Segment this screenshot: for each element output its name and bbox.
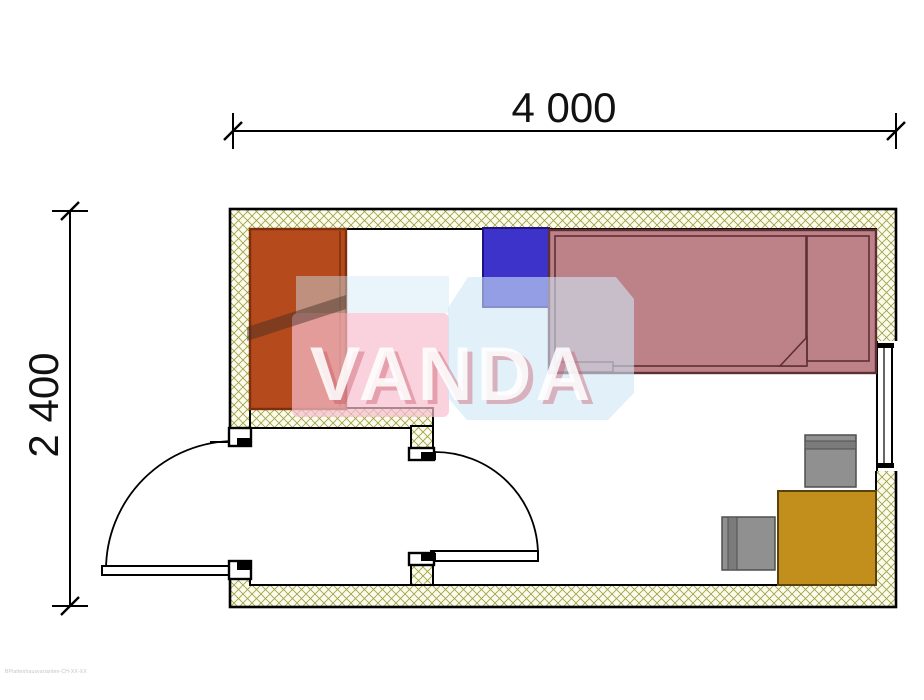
interior-jamb-bottom-stop	[421, 553, 436, 561]
dimension-width-label: 4 000	[511, 84, 616, 131]
entrance-jamb-top-stop	[237, 438, 252, 447]
chair-left-backrest	[728, 517, 737, 570]
entrance-jamb-bottom	[229, 561, 252, 579]
watermark: VANDA VANDA	[247, 276, 634, 421]
chair-left	[722, 517, 775, 570]
floor-plan-page: VANDA VANDA 4 000 2 400 BPlattenhausvari…	[0, 0, 924, 700]
fineprint-text: BPlattenhausvarianten-CH-XX-XX	[5, 669, 87, 675]
entrance-door-swing-arc	[106, 441, 235, 570]
desk	[778, 491, 876, 585]
interior-jamb-top-stop	[421, 452, 436, 460]
dimension-width: 4 000	[224, 84, 905, 149]
watermark-text: VANDA	[310, 332, 595, 417]
entrance-jamb-top	[229, 428, 252, 447]
dimension-height-label: 2 400	[20, 352, 67, 457]
interior-door-leaf	[431, 551, 538, 561]
dimension-height: 2 400	[20, 202, 88, 615]
entrance-jamb-bottom-stop	[237, 561, 252, 570]
chair-top-backrest	[805, 441, 856, 449]
chair-top	[805, 435, 856, 487]
floor-plan-drawing: VANDA VANDA 4 000 2 400 BPlattenhausvari…	[0, 0, 924, 700]
window-top-cap	[876, 343, 894, 348]
interior-jamb-top	[409, 448, 436, 460]
entrance-opening	[226, 446, 254, 564]
interior-jamb-bottom	[409, 553, 436, 565]
window-bottom-cap	[876, 463, 894, 468]
interior-door	[409, 448, 538, 565]
entrance-door-leaf	[102, 566, 235, 575]
interior-door-swing-arc	[434, 452, 538, 555]
interior-door-lower-stub	[411, 563, 433, 585]
